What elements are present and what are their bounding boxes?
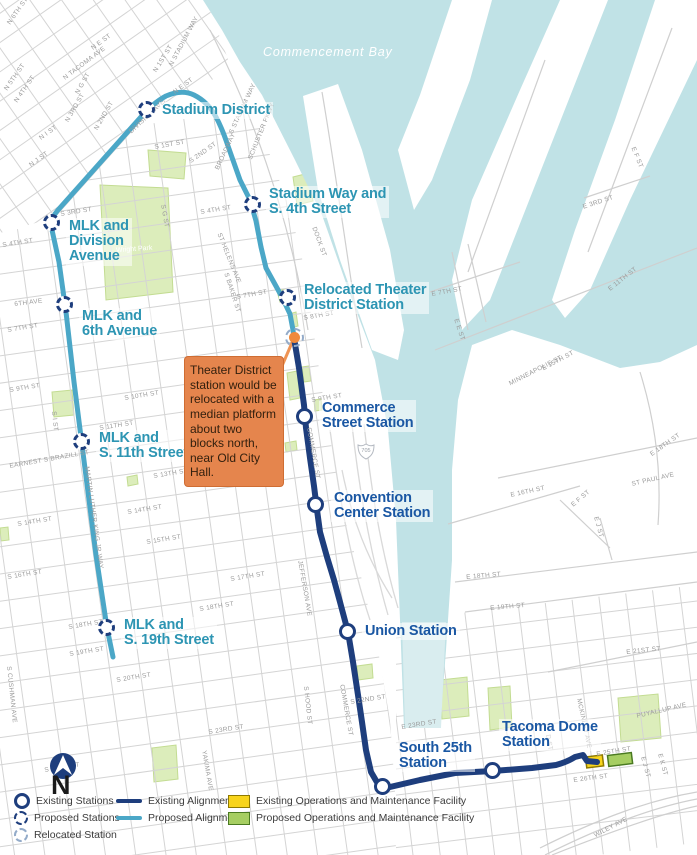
legend-symbol-proposed-circle — [14, 811, 28, 825]
station-marker-tacoma-dome — [484, 762, 501, 779]
legend-item-existing-alignment: Existing Alignment — [116, 794, 234, 808]
legend-label: Relocated Station — [34, 829, 117, 841]
station-label-stadium-district: Stadium District — [159, 102, 273, 119]
station-marker-theater-district-old — [285, 328, 304, 347]
station-marker-union-station — [339, 623, 356, 640]
legend-symbol-proposed-line — [116, 816, 142, 820]
station-marker-relocated-theater-district — [279, 289, 296, 306]
station-label-stadium-way-s-4th: Stadium Way and S. 4th Street — [266, 186, 389, 218]
legend-label: Existing Stations — [36, 795, 114, 807]
station-marker-mlk-s-19th — [98, 619, 115, 636]
station-marker-convention-center — [307, 496, 324, 513]
station-marker-mlk-6th-avenue — [56, 296, 73, 313]
legend-item-relocated-station: Relocated Station — [14, 828, 117, 842]
legend-symbol-proposed-box — [228, 812, 250, 825]
legend-label: Proposed Operations and Maintenance Faci… — [256, 812, 474, 824]
station-label-mlk-s-19th: MLK and S. 19th Street — [121, 617, 217, 649]
legend-symbol-relocated-circle — [14, 828, 28, 842]
station-label-south-25th: South 25th Station — [396, 740, 475, 772]
relocation-callout: Theater District station would be reloca… — [184, 356, 284, 487]
transit-map: Commencement Bay Wright Park 705 N 6TH S… — [0, 0, 697, 855]
station-label-relocated-theater-district: Relocated Theater District Station — [301, 282, 429, 314]
legend-label: Proposed Stations — [34, 812, 120, 824]
station-label-commerce-street: Commerce Street Station — [319, 400, 416, 432]
legend-item-proposed-alignment: Proposed Alignment — [116, 811, 242, 825]
station-marker-stadium-district — [138, 101, 155, 118]
legend-item-proposed-operations-and-maintenance-facility: Proposed Operations and Maintenance Faci… — [228, 811, 474, 825]
station-label-mlk-s-11th: MLK and S. 11th Street — [96, 430, 191, 462]
station-label-convention-center: Convention Center Station — [331, 490, 433, 522]
legend-label: Existing Alignment — [148, 795, 234, 807]
legend-item-existing-stations: Existing Stations — [14, 794, 114, 808]
station-label-union-station: Union Station — [362, 623, 460, 640]
highway-shield-705: 705 — [357, 443, 375, 460]
station-marker-commerce-street — [296, 408, 313, 425]
station-marker-mlk-s-11th — [73, 433, 90, 450]
station-marker-mlk-division — [43, 214, 60, 231]
legend-item-existing-operations-and-maintenance-facility: Existing Operations and Maintenance Faci… — [228, 794, 466, 808]
legend-symbol-existing-circle — [14, 793, 30, 809]
legend-symbol-existing-box — [228, 795, 250, 808]
station-marker-south-25th — [374, 778, 391, 795]
bay-label: Commencement Bay — [263, 45, 393, 59]
station-label-mlk-6th-avenue: MLK and 6th Avenue — [79, 308, 160, 340]
legend-label: Existing Operations and Maintenance Faci… — [256, 795, 466, 807]
station-label-mlk-division: MLK and Division Avenue — [66, 218, 132, 266]
legend-item-proposed-stations: Proposed Stations — [14, 811, 120, 825]
station-marker-stadium-way-s-4th — [244, 196, 261, 213]
legend-symbol-existing-line — [116, 799, 142, 803]
old-station-dot — [289, 332, 300, 343]
station-label-tacoma-dome: Tacoma Dome Station — [499, 719, 601, 751]
